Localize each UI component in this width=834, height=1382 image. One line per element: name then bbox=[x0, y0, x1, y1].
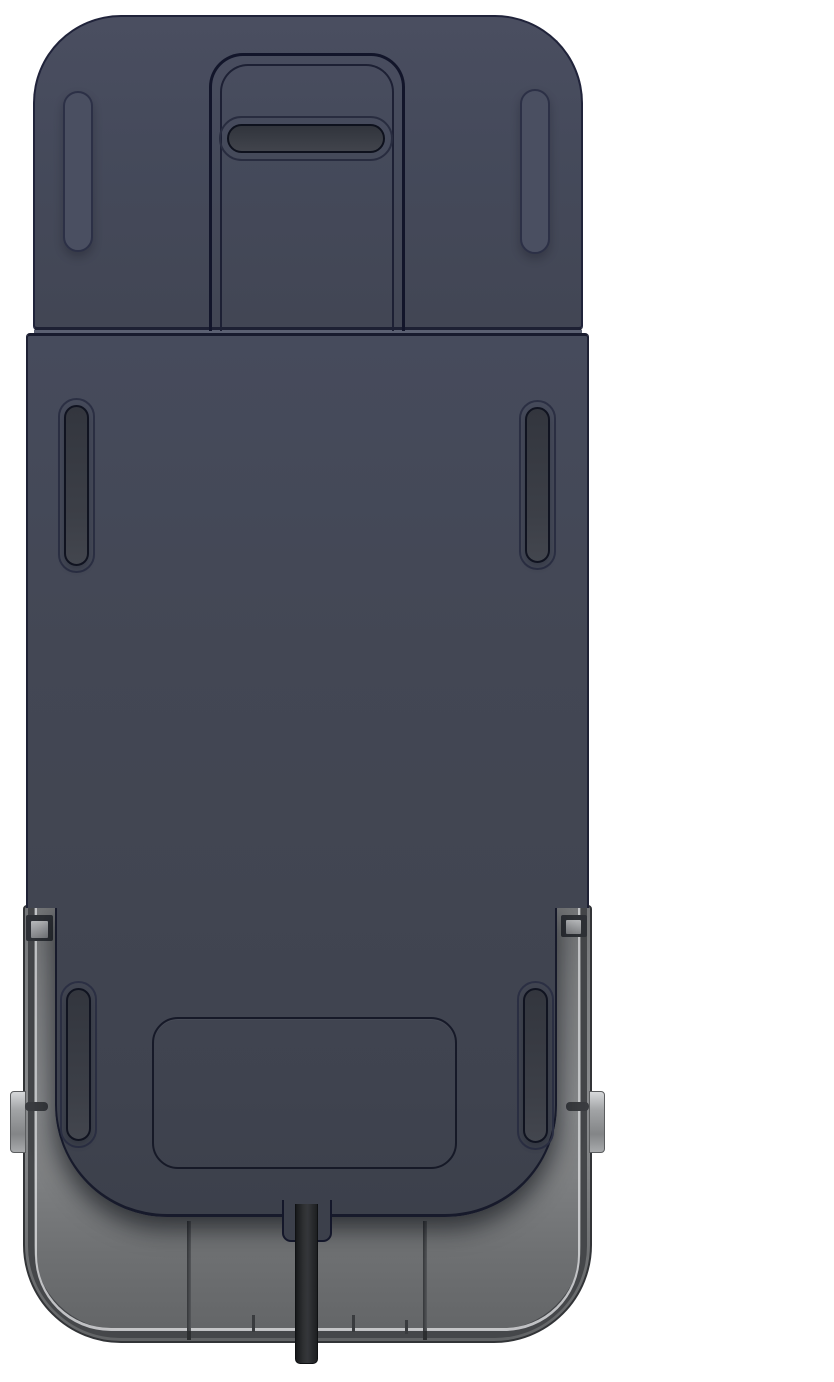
tray-rib-right bbox=[423, 1221, 427, 1331]
product-render-canvas bbox=[0, 0, 834, 1382]
side-tab-pin-right bbox=[566, 1102, 589, 1111]
tray-clip-left-inner bbox=[31, 921, 48, 938]
upper-vent-slot-right bbox=[525, 407, 550, 563]
upper-vent-slot-left bbox=[64, 405, 89, 566]
handle-slot bbox=[227, 124, 385, 153]
power-cable bbox=[295, 1204, 318, 1364]
top-groove-inner-line bbox=[220, 64, 394, 331]
tray-rib-left bbox=[187, 1221, 191, 1331]
head-pill-right bbox=[520, 89, 550, 254]
head-pill-left bbox=[63, 91, 93, 252]
side-tab-pin-left bbox=[25, 1102, 48, 1111]
tray-tick-mark bbox=[405, 1320, 408, 1334]
lower-vent-slot-left bbox=[66, 988, 91, 1141]
device-body-upper bbox=[26, 333, 589, 908]
side-tab-left bbox=[10, 1091, 26, 1153]
lower-vent-slot-right bbox=[523, 988, 548, 1143]
tray-tick-mark bbox=[352, 1315, 355, 1332]
tray-clip-right-inner bbox=[566, 920, 581, 934]
tray-rib-foot-right bbox=[423, 1331, 427, 1340]
tray-tick-mark bbox=[252, 1315, 255, 1332]
tray-rib-foot-left bbox=[187, 1331, 191, 1340]
side-tab-right bbox=[589, 1091, 605, 1153]
bottom-access-panel bbox=[152, 1017, 457, 1169]
